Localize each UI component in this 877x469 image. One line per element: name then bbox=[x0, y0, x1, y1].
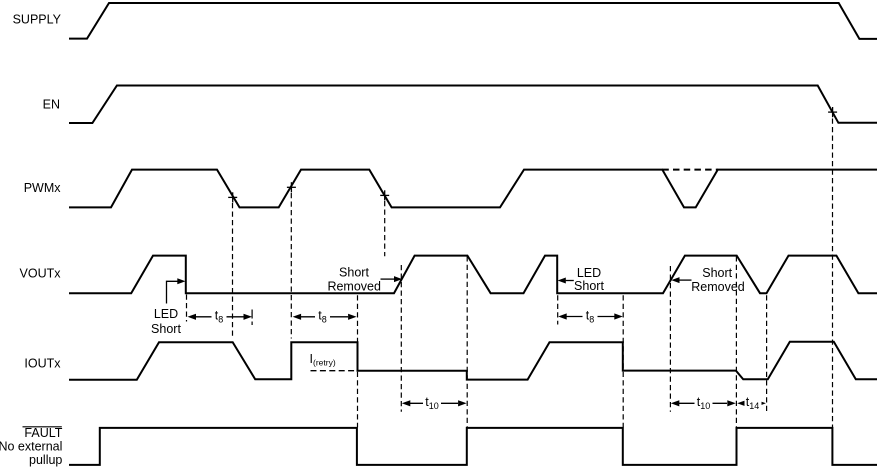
svg-text:SUPPLY: SUPPLY bbox=[13, 12, 62, 26]
svg-text:pullup: pullup bbox=[29, 453, 62, 467]
svg-text:PWMx: PWMx bbox=[24, 181, 62, 195]
svg-text:LED: LED bbox=[154, 307, 178, 321]
svg-text:No external: No external bbox=[0, 440, 62, 454]
svg-text:IOUTx: IOUTx bbox=[24, 357, 61, 371]
svg-text:Removed: Removed bbox=[691, 280, 745, 294]
svg-text:EN: EN bbox=[43, 98, 60, 112]
svg-text:Short: Short bbox=[574, 279, 604, 293]
svg-text:FAULT: FAULT bbox=[24, 426, 62, 440]
svg-text:Short: Short bbox=[339, 266, 369, 280]
svg-text:VOUTx: VOUTx bbox=[20, 267, 62, 281]
svg-text:LED: LED bbox=[577, 266, 601, 280]
svg-text:Removed: Removed bbox=[327, 279, 381, 293]
svg-text:Short: Short bbox=[702, 266, 732, 280]
svg-text:Short: Short bbox=[151, 322, 181, 336]
